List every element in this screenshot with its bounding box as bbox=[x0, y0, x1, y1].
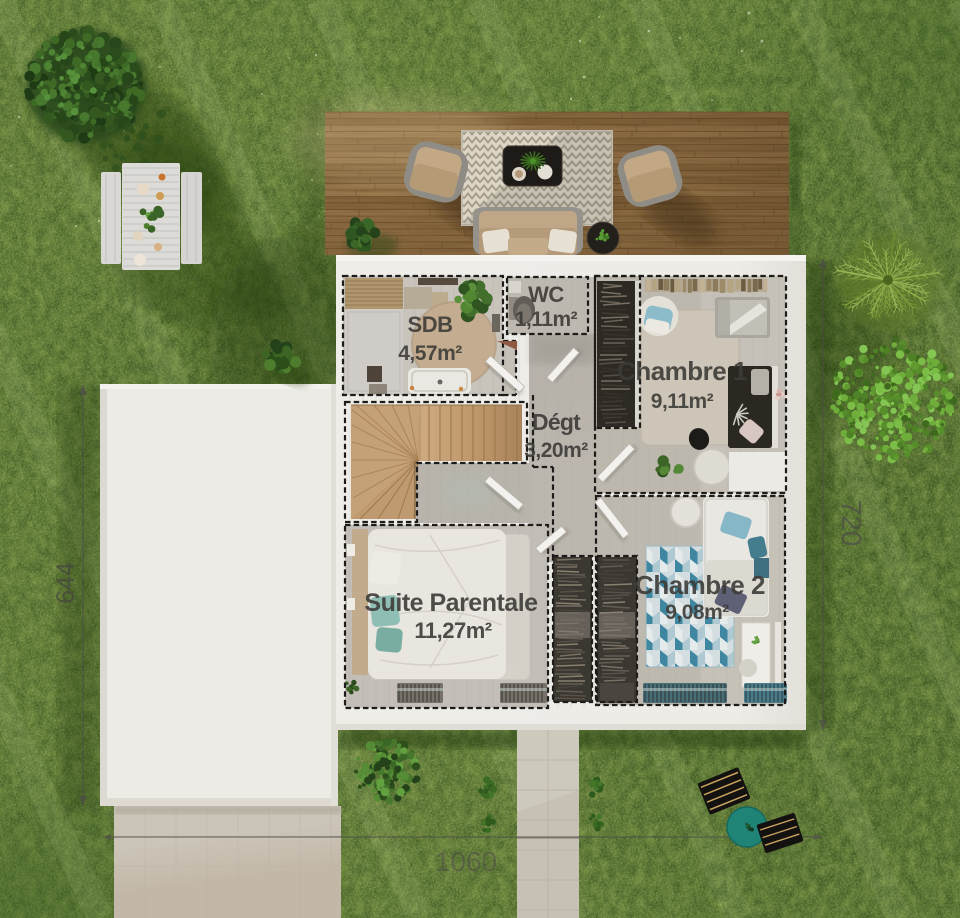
svg-text:9,11m²: 9,11m² bbox=[651, 390, 714, 413]
svg-text:4,57m²: 4,57m² bbox=[398, 342, 462, 365]
svg-text:3,20m²: 3,20m² bbox=[524, 439, 588, 462]
svg-text:Suite Parentale: Suite Parentale bbox=[364, 589, 538, 617]
svg-text:SDB: SDB bbox=[408, 312, 453, 337]
svg-text:11,27m²: 11,27m² bbox=[414, 618, 491, 643]
svg-text:Dégt: Dégt bbox=[532, 409, 581, 435]
svg-text:720: 720 bbox=[836, 500, 867, 547]
svg-text:Chambre 1: Chambre 1 bbox=[617, 356, 747, 386]
svg-text:9,08m²: 9,08m² bbox=[665, 601, 729, 624]
svg-text:644: 644 bbox=[52, 562, 80, 604]
svg-text:1060: 1060 bbox=[435, 846, 497, 877]
svg-text:WC: WC bbox=[528, 282, 564, 307]
svg-text:1,11m²: 1,11m² bbox=[515, 308, 578, 331]
svg-text:Chambre 2: Chambre 2 bbox=[635, 570, 765, 600]
